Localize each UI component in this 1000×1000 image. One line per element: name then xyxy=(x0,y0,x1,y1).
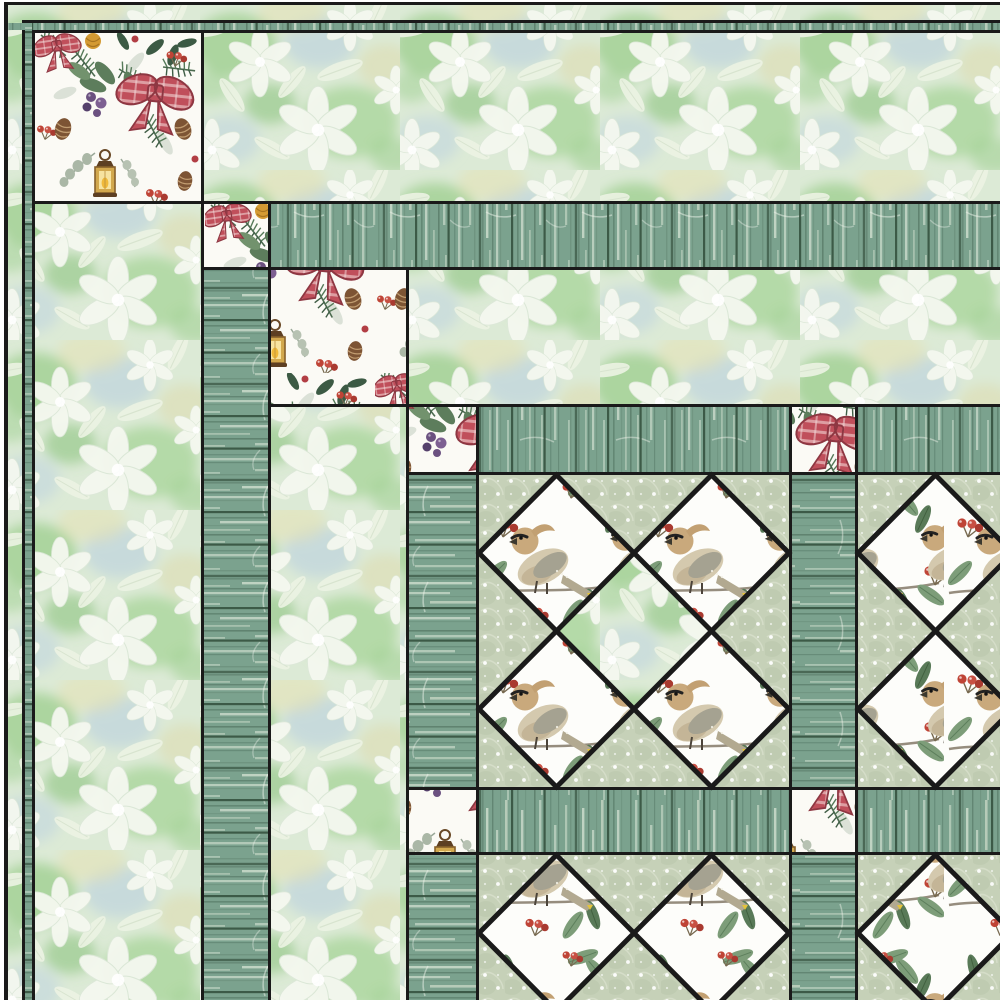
border-wood-top-2-left xyxy=(479,407,789,472)
cornerstone-bottom-left xyxy=(409,790,476,852)
border-floral-top-2 xyxy=(409,270,1000,404)
border-wood-top-2-right xyxy=(858,407,1000,472)
outer-border-floral-top xyxy=(8,5,1000,20)
outer-border-wood-top xyxy=(8,23,1000,30)
sashing-vertical-lower xyxy=(792,855,855,1000)
quilt-mockup xyxy=(0,0,1000,1000)
outer-border-wood-left xyxy=(25,23,32,1000)
quilt-preview-canvas xyxy=(0,0,1000,1000)
corner-block-1 xyxy=(35,33,201,201)
border-wood-left-2-upper xyxy=(409,475,476,787)
corner-block-2 xyxy=(204,204,268,267)
border-wood-left-2-lower xyxy=(409,855,476,1000)
outer-border-floral-left xyxy=(8,5,22,1000)
sashing-horizontal-left xyxy=(479,790,789,852)
border-floral-top-1 xyxy=(204,33,1000,201)
cornerstone-top-right xyxy=(792,407,855,472)
border-wood-top-1 xyxy=(271,204,1000,267)
sashing-horizontal-right xyxy=(858,790,1000,852)
corner-block-3 xyxy=(271,270,406,404)
sashing-vertical-upper xyxy=(792,475,855,787)
corner-block-4 xyxy=(409,407,476,472)
border-wood-left-1 xyxy=(204,270,268,1000)
border-floral-left-1 xyxy=(35,204,201,1000)
sashing-cornerstone xyxy=(792,790,855,852)
border-floral-left-2 xyxy=(271,407,406,1000)
